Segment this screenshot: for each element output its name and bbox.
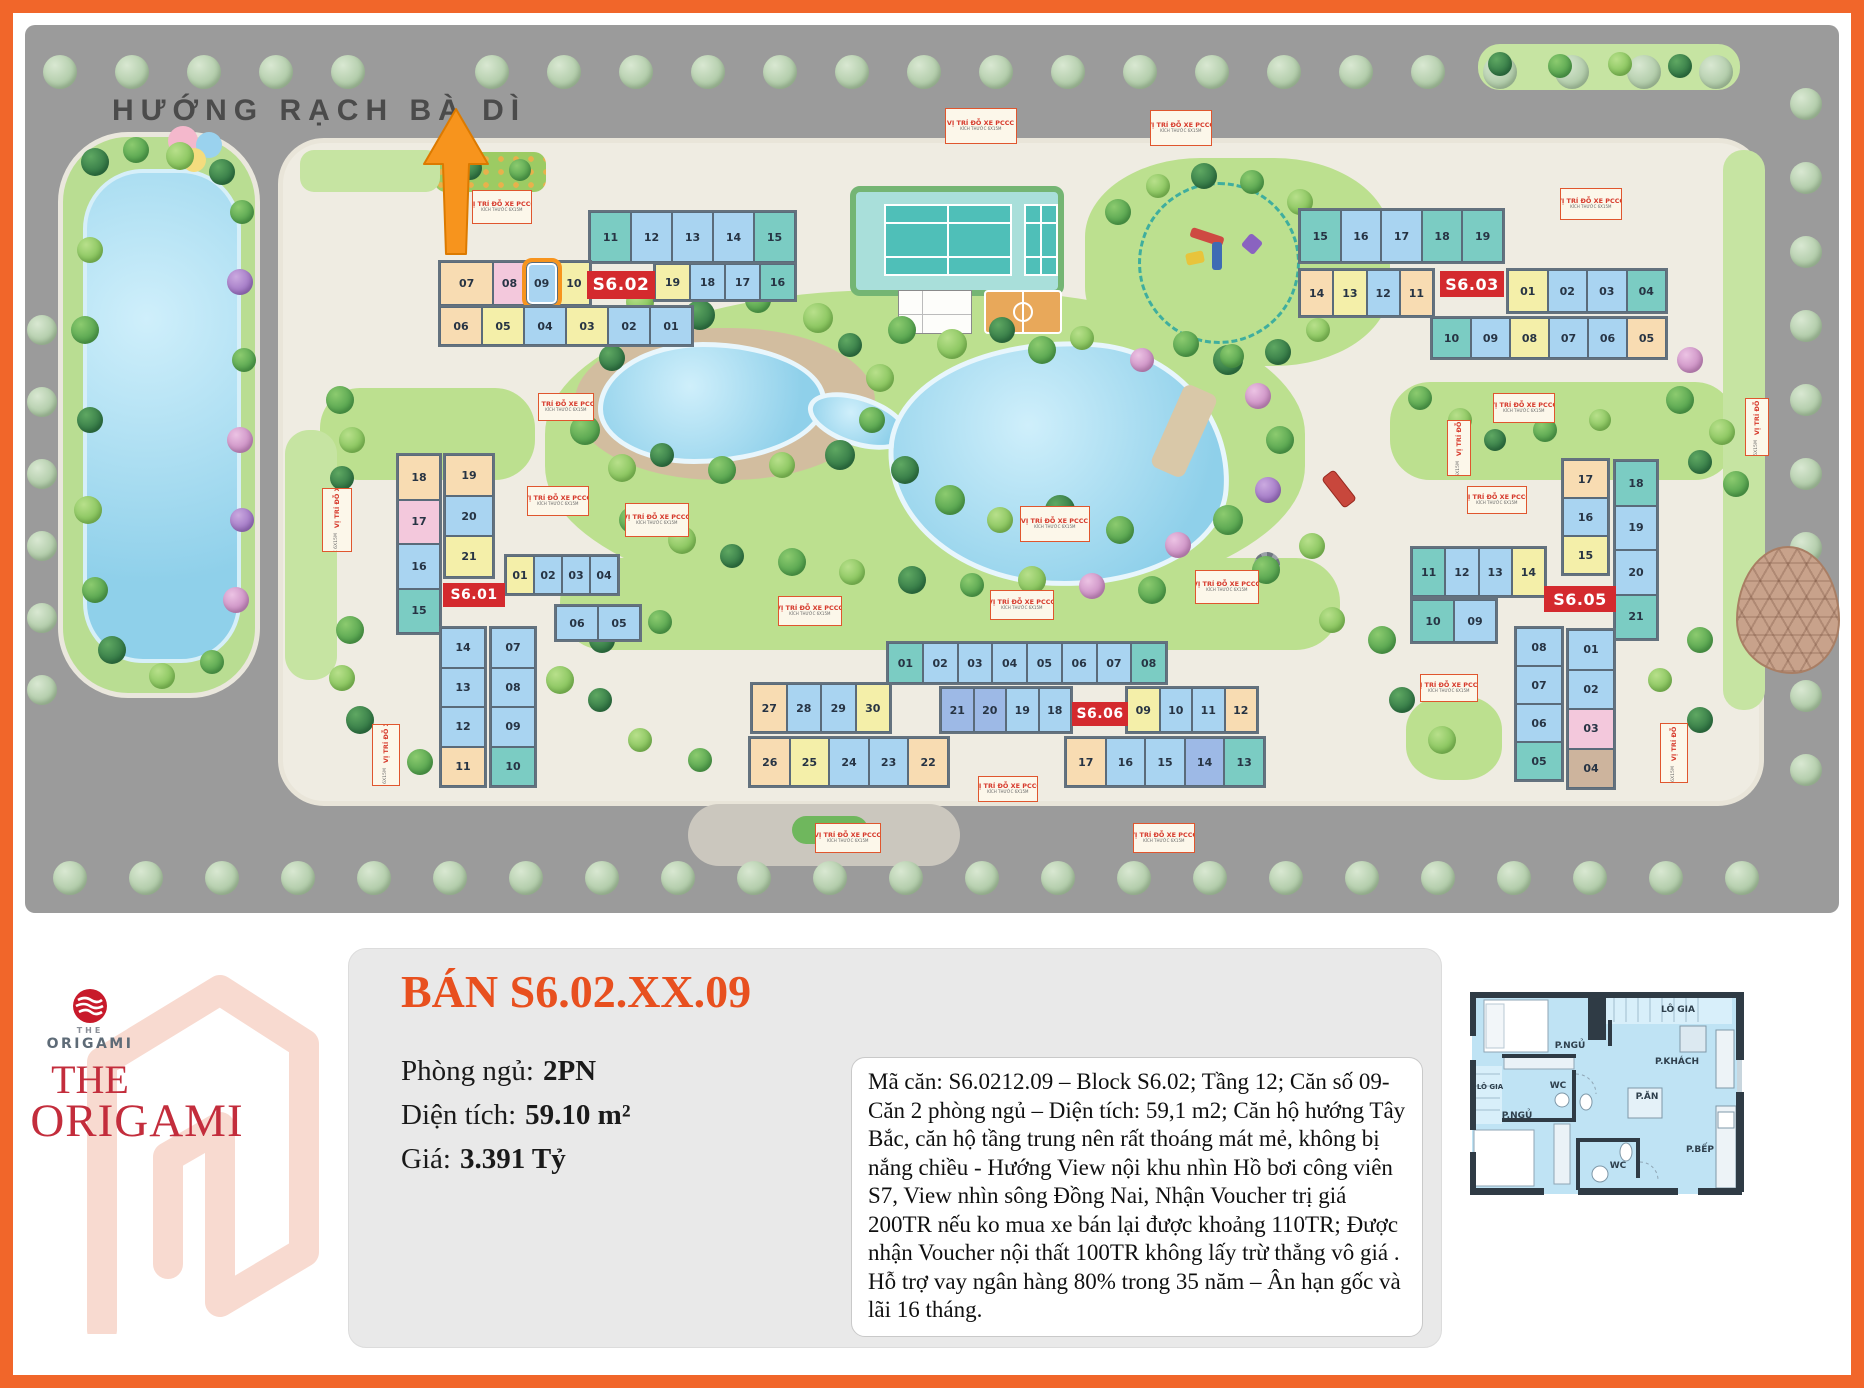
unit-s602-19: 19 (655, 264, 690, 300)
room-label: WC (1610, 1161, 1627, 1171)
building-strip-s603_b: 14131211 (1300, 270, 1433, 316)
parking-label-title: VỊ TRÍ ĐỖ XE PCCC (538, 400, 594, 407)
tree-icon (433, 861, 467, 895)
unit-s601-15: 15 (398, 589, 440, 634)
tree-icon (1790, 680, 1822, 712)
tree-icon (1267, 55, 1301, 89)
unit-s601-05: 05 (598, 606, 640, 640)
parking-label-sub: KÍCH THƯỚC 6X15M (334, 533, 339, 552)
tree-icon (650, 443, 674, 467)
building-strip-s601_m: 192021 (445, 455, 493, 577)
unit-s602-11: 11 (590, 212, 631, 262)
parking-label: VỊ TRÍ ĐỖ XE PCCCKÍCH THƯỚC 6X15M (1020, 506, 1090, 542)
room-label: LÔ GIA (1661, 1005, 1695, 1015)
tree-icon (769, 452, 795, 478)
room-label: WC (1550, 1081, 1567, 1091)
tree-icon (27, 675, 57, 705)
parking-label-sub: KÍCH THƯỚC 6X15M (960, 128, 1001, 133)
unit-s605-04: 04 (1568, 749, 1614, 789)
tree-icon (230, 200, 254, 224)
parking-label: VỊ TRÍ ĐỖ XE PCCCKÍCH THƯỚC 6X15M (372, 724, 400, 786)
tree-icon (27, 459, 57, 489)
tree-icon (209, 159, 235, 185)
unit-s603-18: 18 (1422, 210, 1463, 262)
building-strip-s606_bl: 2625242322 (750, 738, 948, 786)
parking-label-title: VỊ TRÍ ĐỖ XE PCCC (1021, 517, 1088, 524)
parking-label-sub: KÍCH THƯỚC 6X15M (1570, 206, 1611, 211)
landscape-eqb (1212, 242, 1222, 270)
unit-s606-05: 05 (1027, 643, 1062, 683)
tree-icon (27, 387, 57, 417)
parking-label-title: VỊ TRÍ ĐỖ XE PCCC (1455, 420, 1462, 456)
parking-label: VỊ TRÍ ĐỖ XE PCCCKÍCH THƯỚC 6X15M (625, 503, 689, 537)
unit-s601-08: 08 (491, 668, 535, 708)
building-strip-s601_l: 18171615 (398, 455, 440, 633)
tree-icon (200, 650, 224, 674)
unit-s601-09: 09 (491, 707, 535, 747)
north-arrow-icon (418, 106, 494, 258)
unit-s606-22: 22 (908, 738, 948, 786)
tree-icon (1345, 861, 1379, 895)
tree-icon (1573, 861, 1607, 895)
block-badge-s602: S6.02 (587, 271, 655, 299)
unit-s606-10: 10 (1160, 688, 1193, 732)
unit-s601-07: 07 (491, 628, 535, 668)
unit-s606-15: 15 (1145, 738, 1185, 786)
parking-label-sub: KÍCH THƯỚC 6X15M (987, 791, 1028, 796)
tree-icon (839, 559, 865, 585)
unit-s603-11: 11 (1400, 270, 1433, 316)
unit-s603-06: 06 (1588, 318, 1627, 358)
unit-s606-20: 20 (974, 688, 1007, 732)
parking-label-title: VỊ TRÍ ĐỖ XE PCCC (1195, 580, 1259, 587)
unit-s603-10: 10 (1432, 318, 1471, 358)
building-strip-s601_r2: 0605 (556, 606, 640, 640)
tree-icon (1240, 170, 1264, 194)
tree-icon (475, 55, 509, 89)
unit-s605-06: 06 (1516, 704, 1562, 742)
tree-icon (82, 577, 108, 603)
listing-description: Mã căn: S6.0212.09 – Block S6.02; Tầng 1… (851, 1057, 1423, 1337)
parking-label-title: VỊ TRÍ ĐỖ XE PCCC (1493, 401, 1555, 408)
tree-icon (778, 548, 806, 576)
unit-s605-16: 16 (1563, 498, 1608, 536)
unit-s602-17: 17 (725, 264, 760, 300)
tree-icon (935, 485, 965, 515)
unit-s603-04: 04 (1627, 270, 1667, 312)
unit-s605-18: 18 (1615, 461, 1657, 506)
room-label: P.BẾP (1686, 1145, 1714, 1155)
unit-s605-15: 15 (1563, 536, 1608, 574)
unit-s602-04: 04 (524, 307, 566, 345)
tree-icon (888, 316, 916, 344)
parking-label-title: VỊ TRÍ ĐỖ XE PCCC (625, 513, 689, 520)
unit-s601-04: 04 (590, 556, 618, 594)
parking-label-sub: KÍCH THƯỚC 6X15M (827, 840, 868, 845)
unit-s605-17: 17 (1563, 460, 1608, 498)
unit-s606-09: 09 (1127, 688, 1160, 732)
parking-label-sub: KÍCH THƯỚC 6X15M (1143, 840, 1184, 845)
tree-icon (891, 456, 919, 484)
tree-icon (708, 456, 736, 484)
tree-icon (1677, 347, 1703, 373)
tree-icon (1790, 384, 1822, 416)
parking-label: VỊ TRÍ ĐỖ XE PCCCKÍCH THƯỚC 6X15M (1560, 188, 1622, 220)
unit-s605-02: 02 (1568, 670, 1614, 710)
tree-icon (1421, 861, 1455, 895)
parking-label-title: VỊ TRÍ ĐỖ XE PCCC (1670, 723, 1677, 761)
tree-icon (227, 427, 253, 453)
tree-icon (1028, 336, 1056, 364)
tree-icon (1193, 861, 1227, 895)
listing-panel: BÁN S6.02.XX.09 Phòng ngủ:2PN Diện tích:… (348, 948, 1442, 1348)
tree-icon (547, 55, 581, 89)
unit-s605-08: 08 (1516, 628, 1562, 666)
tree-icon (688, 748, 712, 772)
unit-s601-01: 01 (506, 556, 534, 594)
tree-icon (407, 749, 433, 775)
unit-s601-14: 14 (441, 628, 485, 668)
unit-s606-07: 07 (1097, 643, 1132, 683)
tree-icon (1790, 458, 1822, 490)
unit-s601-10: 10 (491, 747, 535, 787)
block-badge-s601: S6.01 (443, 583, 505, 607)
tree-icon (813, 861, 847, 895)
tree-icon (43, 55, 77, 89)
building-strip-s602_d: 060504030201 (440, 307, 692, 345)
building-strip-s603_c: 01020304 (1508, 270, 1666, 312)
tree-icon (1245, 383, 1271, 409)
unit-s606-23: 23 (869, 738, 909, 786)
parking-label-title: VỊ TRÍ ĐỖ XE PCCC (815, 831, 881, 838)
origami-watermark-icon (72, 962, 334, 1334)
tree-icon (149, 663, 175, 689)
field-bedrooms-label: Phòng ngủ: (401, 1055, 534, 1087)
tennis-court-lines (884, 204, 1012, 276)
tree-icon (1589, 409, 1611, 431)
tree-icon (546, 666, 574, 694)
logo-small-the: THE (40, 1026, 140, 1035)
building-strip-s606_ml: 27282930 (752, 684, 890, 732)
unit-s606-29: 29 (821, 684, 856, 732)
tree-icon (357, 861, 391, 895)
field-bedrooms-value: 2PN (543, 1055, 596, 1087)
tree-icon (509, 861, 543, 895)
parking-label: VỊ TRÍ ĐỖ XE PCCCKÍCH THƯỚC 6X15M (778, 596, 842, 626)
tree-icon (937, 329, 967, 359)
unit-s601-21: 21 (445, 536, 493, 577)
unit-s602-08: 08 (493, 262, 525, 305)
unit-s606-17: 17 (1066, 738, 1106, 786)
unit-s602-13: 13 (672, 212, 713, 262)
building-strip-s602_b: 19181716 (655, 264, 795, 300)
tree-icon (661, 861, 695, 895)
unit-s602-02: 02 (608, 307, 650, 345)
tree-icon (27, 315, 57, 345)
parking-label-sub: KÍCH THƯỚC 6X15M (1206, 589, 1247, 594)
parking-label: VỊ TRÍ ĐỖ XE PCCCKÍCH THƯỚC 6X15M (527, 486, 589, 516)
block-badge-s605: S6.05 (1544, 586, 1616, 612)
parking-label: VỊ TRÍ ĐỖ XE PCCCKÍCH THƯỚC 6X15M (1150, 110, 1212, 146)
unit-s603-14: 14 (1300, 270, 1333, 316)
tree-icon (1105, 199, 1131, 225)
site-plan-map: HƯỚNG RẠCH BÀ DÌ 11121314151918171607080… (0, 0, 1864, 920)
unit-s606-27: 27 (752, 684, 787, 732)
tree-icon (691, 55, 725, 89)
tree-icon (1130, 348, 1154, 372)
tree-icon (1484, 429, 1506, 451)
unit-s601-12: 12 (441, 707, 485, 747)
unit-s606-28: 28 (787, 684, 822, 732)
unit-s606-16: 16 (1106, 738, 1146, 786)
unit-s602-03: 03 (566, 307, 608, 345)
unit-s601-18: 18 (398, 455, 440, 500)
tree-icon (1339, 55, 1373, 89)
unit-s606-04: 04 (992, 643, 1027, 683)
unit-s606-01: 01 (888, 643, 923, 683)
tree-icon (1173, 331, 1199, 357)
tree-icon (1299, 533, 1325, 559)
tree-icon (1041, 861, 1075, 895)
parking-label: VỊ TRÍ ĐỖ XE PCCCKÍCH THƯỚC 6X15M (1467, 486, 1527, 514)
field-price-label: Giá: (401, 1143, 451, 1175)
tree-icon (965, 861, 999, 895)
tree-icon (74, 496, 102, 524)
tree-icon (866, 364, 894, 392)
room-label: P.ĂN (1636, 1092, 1659, 1102)
unit-s602-15: 15 (754, 212, 795, 262)
unit-s602-10: 10 (558, 262, 590, 305)
tree-icon (1608, 52, 1632, 76)
parking-label-title: VỊ TRÍ ĐỖ XE PCCC (1467, 493, 1527, 500)
parking-label-title: VỊ TRÍ ĐỖ XE PCCC (1150, 121, 1212, 128)
tree-icon (129, 861, 163, 895)
tree-icon (1213, 505, 1243, 535)
tree-icon (1627, 55, 1661, 89)
tree-icon (979, 55, 1013, 89)
unit-s601-17: 17 (398, 500, 440, 545)
unit-s601-11: 11 (441, 747, 485, 787)
parking-label: VỊ TRÍ ĐỖ XE PCCCKÍCH THƯỚC 6X15M (538, 393, 594, 421)
parking-label: VỊ TRÍ ĐỖ XE PCCCKÍCH THƯỚC 6X15M (945, 108, 1017, 144)
unit-s606-30: 30 (856, 684, 891, 732)
tree-icon (989, 317, 1015, 343)
floor-plan: LÔ GIA P.NGỦ P.KHÁCH LÔ GIA WC P.ĂN P.NG… (1458, 966, 1754, 1210)
tree-icon (1687, 627, 1713, 653)
building-strip-s602_c: 07080910 (440, 262, 590, 305)
unit-s602-07: 07 (440, 262, 493, 305)
unit-s606-12: 12 (1225, 688, 1258, 732)
parking-label-sub: KÍCH THƯỚC 6X15M (636, 522, 677, 527)
unit-s602-18: 18 (690, 264, 725, 300)
tree-icon (339, 427, 365, 453)
tree-icon (1725, 861, 1759, 895)
tree-icon (326, 386, 354, 414)
tree-icon (648, 610, 672, 634)
parking-label: VỊ TRÍ ĐỖ XE PCCCKÍCH THƯỚC 6X15M (1447, 420, 1471, 476)
tree-icon (331, 55, 365, 89)
tree-icon (1548, 54, 1572, 78)
tree-icon (588, 688, 612, 712)
unit-s606-06: 06 (1062, 643, 1097, 683)
tree-icon (1389, 687, 1415, 713)
unit-s601-16: 16 (398, 544, 440, 589)
unit-s605-13: 13 (1479, 548, 1512, 596)
tree-icon (1255, 477, 1281, 503)
parking-label-title: VỊ TRÍ ĐỖ XE PCCC (382, 724, 389, 763)
unit-s605-11: 11 (1412, 548, 1445, 596)
unit-s603-07: 07 (1549, 318, 1588, 358)
tree-icon (1723, 471, 1749, 497)
unit-s605-07: 07 (1516, 666, 1562, 704)
unit-s606-13: 13 (1224, 738, 1264, 786)
room-label: P.KHÁCH (1655, 1057, 1699, 1067)
unit-s606-26: 26 (750, 738, 790, 786)
field-bedrooms: Phòng ngủ:2PN (401, 1055, 596, 1088)
building-strip-s605_bl: 08070605 (1516, 628, 1562, 780)
building-strip-s603_a: 1516171819 (1300, 210, 1503, 262)
tree-icon (346, 706, 374, 734)
tree-icon (1688, 450, 1712, 474)
tree-icon (27, 603, 57, 633)
unit-s605-09: 09 (1454, 600, 1496, 642)
parking-label: VỊ TRÍ ĐỖ XE PCCCKÍCH THƯỚC 6X15M (1195, 570, 1259, 604)
unit-s603-02: 02 (1548, 270, 1588, 312)
tree-icon (336, 616, 364, 644)
tree-icon (1699, 55, 1733, 89)
building-strip-s606_mr: 09101112 (1127, 688, 1257, 732)
tree-icon (227, 269, 253, 295)
unit-s603-15: 15 (1300, 210, 1341, 262)
tree-icon (71, 316, 99, 344)
parking-label: VỊ TRÍ ĐỖ XE PCCCKÍCH THƯỚC 6X15M (1493, 393, 1555, 423)
tree-icon (907, 55, 941, 89)
tree-icon (1265, 339, 1291, 365)
parking-label-sub: KÍCH THƯỚC 6X15M (1503, 410, 1544, 415)
unit-s601-19: 19 (445, 455, 493, 496)
tennis-court (850, 186, 1064, 296)
block-badge-s606: S6.06 (1072, 702, 1128, 726)
tree-icon (1051, 55, 1085, 89)
tree-icon (1790, 310, 1822, 342)
tree-icon (1790, 236, 1822, 268)
tree-icon (1428, 726, 1456, 754)
tree-icon (1123, 55, 1157, 89)
building-strip-s605_t: 11121314 (1412, 548, 1545, 596)
tree-icon (115, 55, 149, 89)
tree-icon (230, 508, 254, 532)
tree-icon (509, 159, 531, 181)
tree-icon (825, 440, 855, 470)
unit-s606-14: 14 (1185, 738, 1225, 786)
tree-icon (737, 861, 771, 895)
tree-icon (81, 148, 109, 176)
parking-label-title: VỊ TRÍ ĐỖ XE PCCC (978, 782, 1038, 789)
tree-icon (1411, 55, 1445, 89)
unit-s601-03: 03 (562, 556, 590, 594)
parking-label: VỊ TRÍ ĐỖ XE PCCCKÍCH THƯỚC 6X15M (990, 590, 1054, 620)
parking-label-sub: KÍCH THƯỚC 6X15M (545, 409, 586, 414)
unit-s605-12: 12 (1445, 548, 1478, 596)
unit-s602-09: 09 (526, 262, 558, 305)
tree-icon (1687, 707, 1713, 733)
parking-label-sub: KÍCH THƯỚC 6X15M (1428, 690, 1469, 695)
tree-icon (960, 573, 984, 597)
building-strip-s606_br: 1716151413 (1066, 738, 1264, 786)
tree-icon (205, 861, 239, 895)
parking-label-title: VỊ TRÍ ĐỖ XE PCCC (778, 604, 842, 611)
parking-label: VỊ TRÍ ĐỖ XE PCCCKÍCH THƯỚC 6X15M (1420, 674, 1478, 702)
tree-icon (281, 861, 315, 895)
tree-icon (889, 861, 923, 895)
tree-icon (619, 55, 653, 89)
tree-icon (77, 407, 103, 433)
unit-s603-12: 12 (1367, 270, 1400, 316)
unit-s606-25: 25 (790, 738, 830, 786)
tree-icon (1195, 55, 1229, 89)
tennis-court-2 (1024, 204, 1058, 276)
parking-label-sub: KÍCH THƯỚC 6X15M (1001, 607, 1042, 612)
tree-icon (628, 728, 652, 752)
parking-label-title: VỊ TRÍ ĐỖ XE PCCC (333, 488, 340, 528)
room-label: P.NGỦ (1555, 1041, 1586, 1051)
unit-s605-01: 01 (1568, 630, 1614, 670)
parking-label-title: VỊ TRÍ ĐỖ XE PCCC (1133, 831, 1195, 838)
unit-s605-05: 05 (1516, 742, 1562, 780)
unit-s605-10: 10 (1412, 600, 1454, 642)
building-strip-s605_m: 171615 (1563, 460, 1608, 574)
tree-icon (1497, 861, 1531, 895)
tree-icon (223, 587, 249, 613)
parking-label-title: VỊ TRÍ ĐỖ XE PCCC (1753, 398, 1760, 435)
unit-s606-08: 08 (1131, 643, 1166, 683)
unit-s606-19: 19 (1006, 688, 1039, 732)
landscape-green2 (285, 430, 337, 680)
tree-icon (166, 142, 194, 170)
tree-icon (187, 55, 221, 89)
parking-label-title: VỊ TRÍ ĐỖ XE PCCC (1420, 681, 1478, 688)
tree-icon (330, 466, 354, 490)
unit-s605-14: 14 (1512, 548, 1545, 596)
unit-s602-05: 05 (482, 307, 524, 345)
tree-icon (859, 407, 885, 433)
unit-s606-11: 11 (1192, 688, 1225, 732)
tree-icon (720, 544, 744, 568)
tree-icon (599, 345, 625, 371)
field-area-value: 59.10 m² (525, 1099, 630, 1131)
tree-icon (1368, 626, 1396, 654)
tree-icon (898, 566, 926, 594)
tree-icon (1070, 326, 1094, 350)
building-strip-s606_t: 0102030405060708 (888, 643, 1166, 683)
unit-s603-17: 17 (1381, 210, 1422, 262)
room-label: LÔ GIA (1477, 1083, 1503, 1091)
unit-s602-01: 01 (650, 307, 692, 345)
unit-s606-02: 02 (923, 643, 958, 683)
unit-s606-24: 24 (829, 738, 869, 786)
unit-s601-02: 02 (534, 556, 562, 594)
building-strip-s601_r1: 01020304 (506, 556, 618, 594)
parking-label-sub: KÍCH THƯỚC 6X15M (1160, 130, 1201, 135)
brand-title-name: ORIGAMI (26, 1094, 248, 1148)
tree-icon (1269, 861, 1303, 895)
flyer-root: HƯỚNG RẠCH BÀ DÌ 11121314151918171607080… (0, 0, 1864, 1388)
unit-s603-05: 05 (1627, 318, 1666, 358)
building-strip-s603_d: 100908070605 (1432, 318, 1666, 358)
tree-icon (987, 507, 1013, 533)
tree-icon (1146, 174, 1170, 198)
unit-s603-01: 01 (1508, 270, 1548, 312)
